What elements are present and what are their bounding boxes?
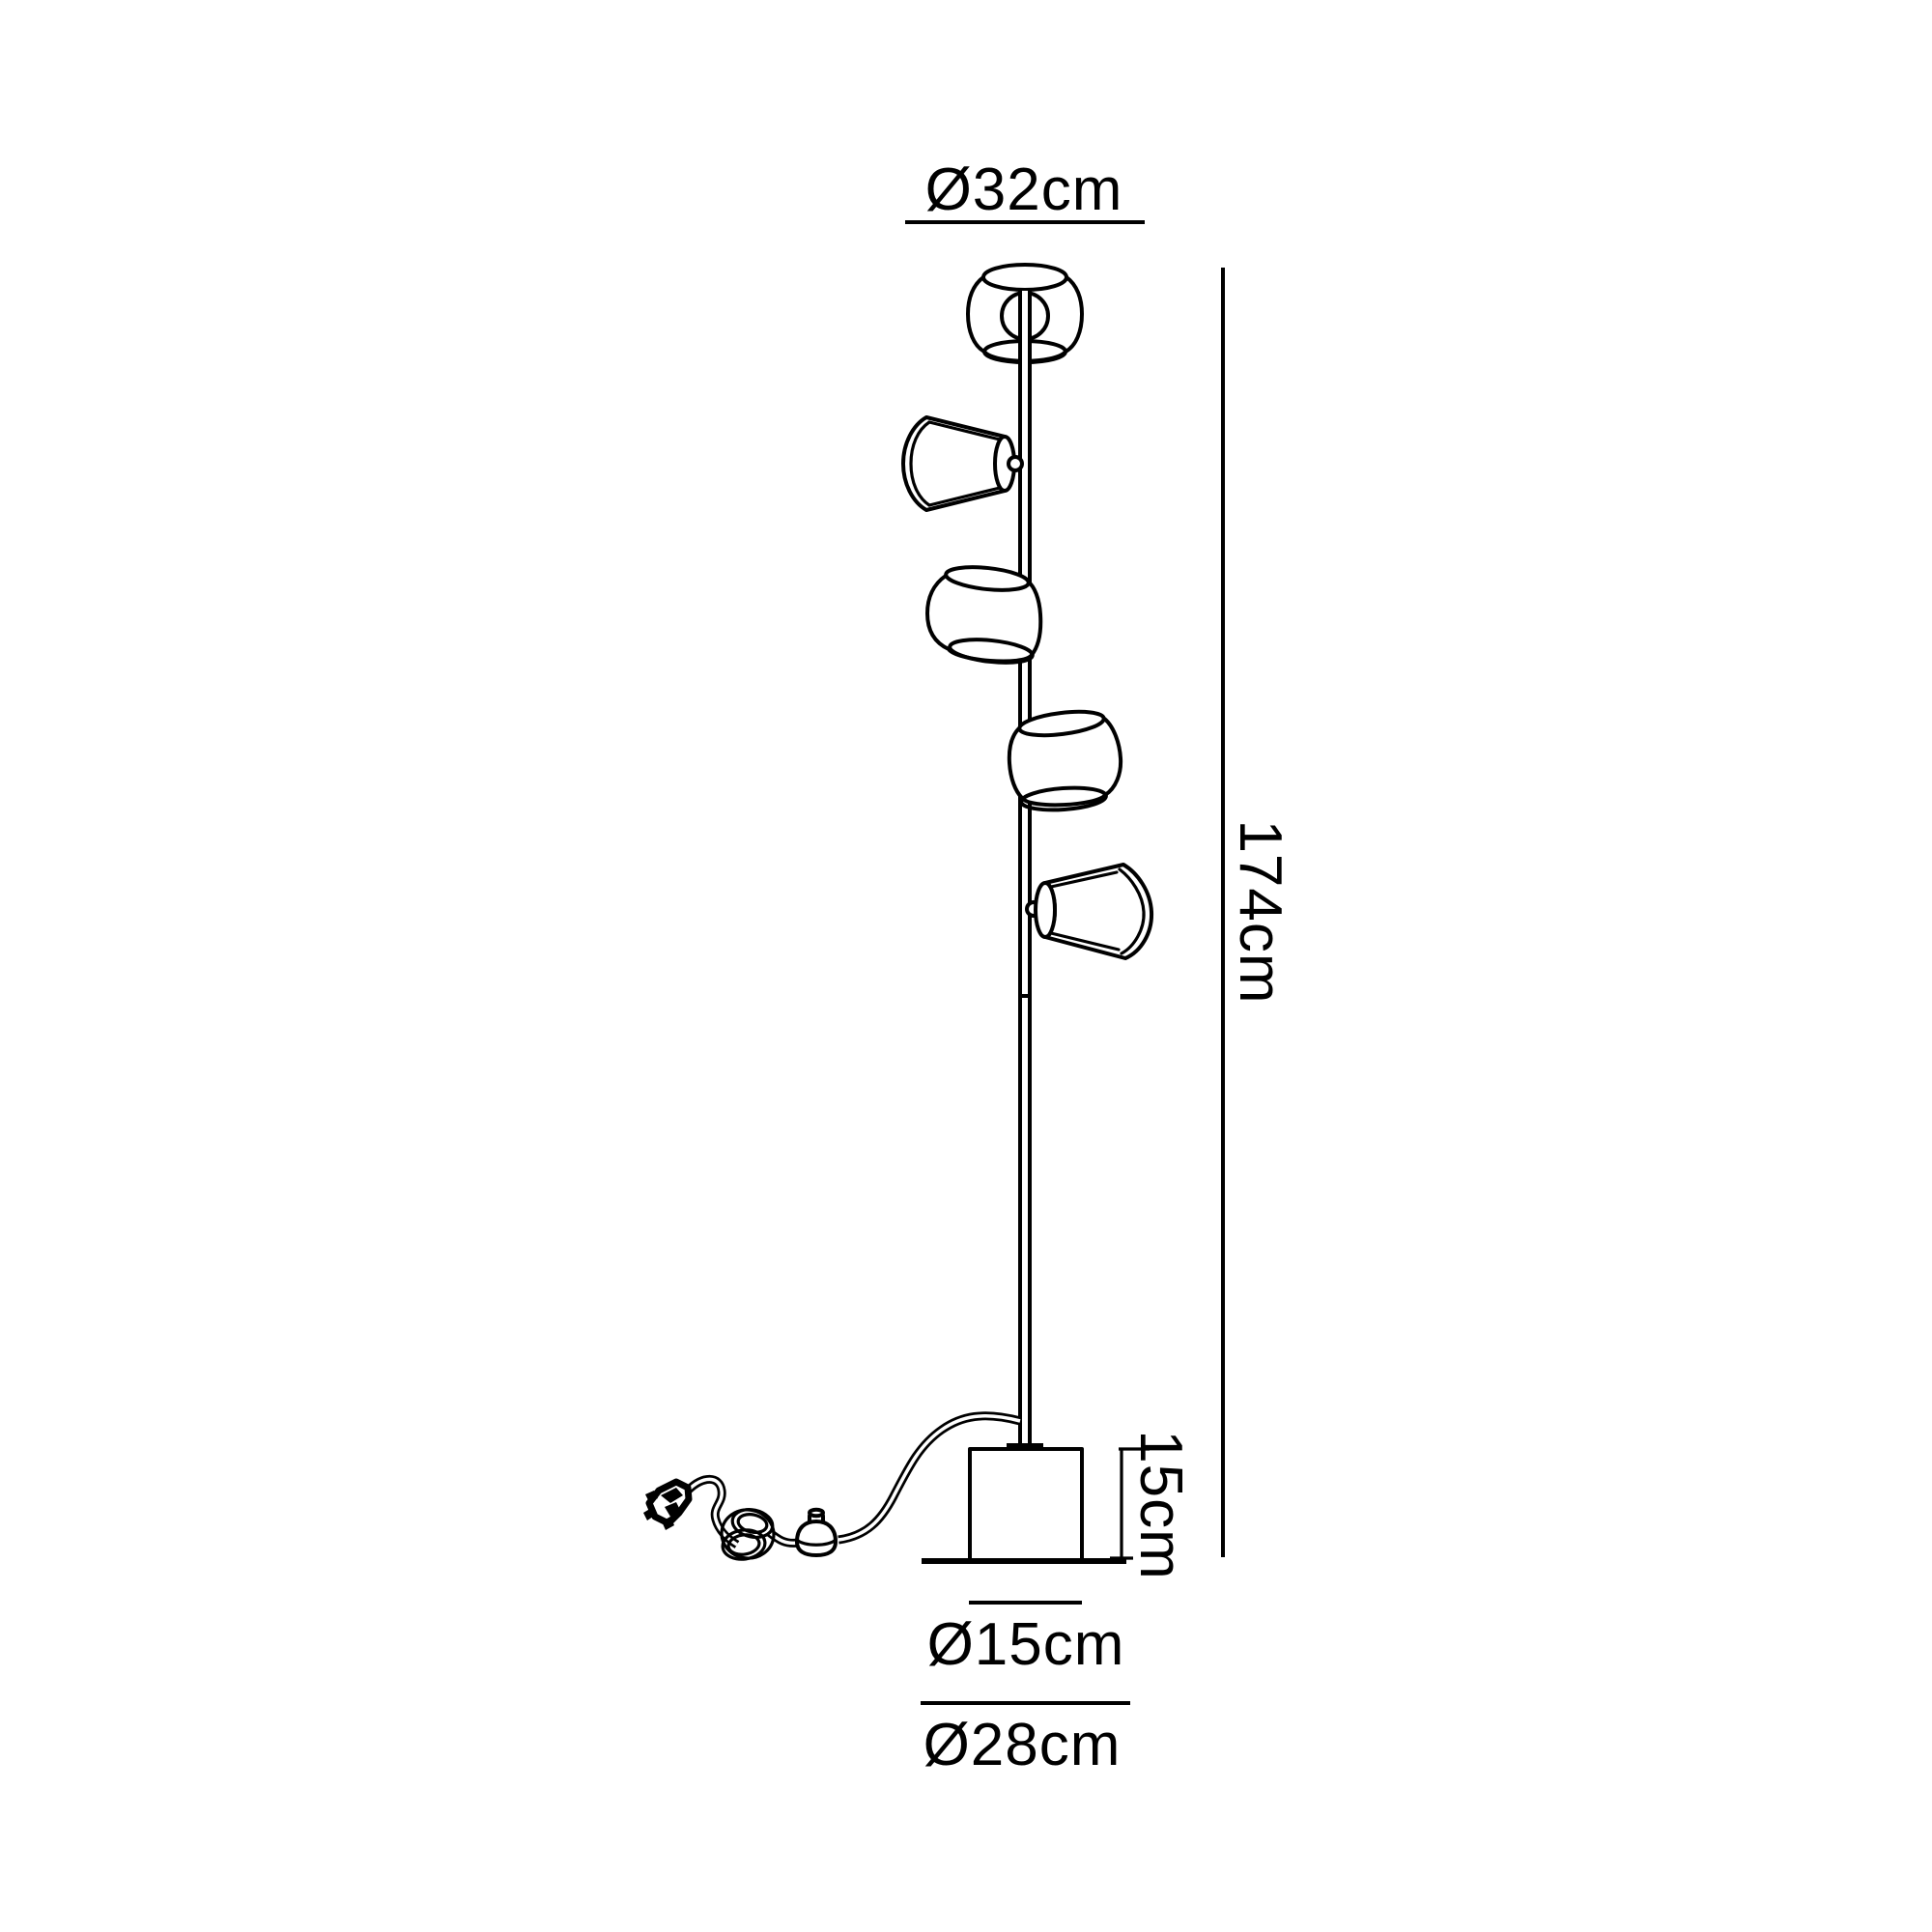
base-height-label: 15cm (1127, 1430, 1194, 1580)
base-diameter-label: Ø15cm (927, 1611, 1125, 1678)
switch-button-top (810, 1510, 823, 1516)
shade-top-opening (983, 265, 1066, 290)
shade-5-cone (1027, 865, 1151, 958)
shade-3-globe (927, 564, 1040, 667)
shade-5-small-end (1036, 883, 1055, 937)
shade-4-globe (1009, 708, 1121, 812)
plug-body (649, 1482, 689, 1523)
floor-lamp-dimension-diagram: Ø32cm 174cm 15cm Ø15cm Ø28cm (0, 0, 1932, 1932)
power-cord (643, 1416, 1020, 1562)
shade-diameter-label: Ø32cm (925, 156, 1123, 223)
power-plug (643, 1482, 689, 1530)
base-cylinder (970, 1449, 1082, 1560)
overall-height-label: 174cm (1227, 819, 1293, 1004)
footprint-diameter-label: Ø28cm (923, 1712, 1122, 1778)
diagram-svg: Ø32cm 174cm 15cm Ø15cm Ø28cm (0, 0, 1932, 1932)
lamp-base (922, 1446, 1126, 1561)
shade-2-connector (1009, 457, 1022, 470)
foot-switch (797, 1510, 836, 1555)
shade-2-cone (903, 417, 1022, 510)
switch-body (797, 1521, 836, 1555)
